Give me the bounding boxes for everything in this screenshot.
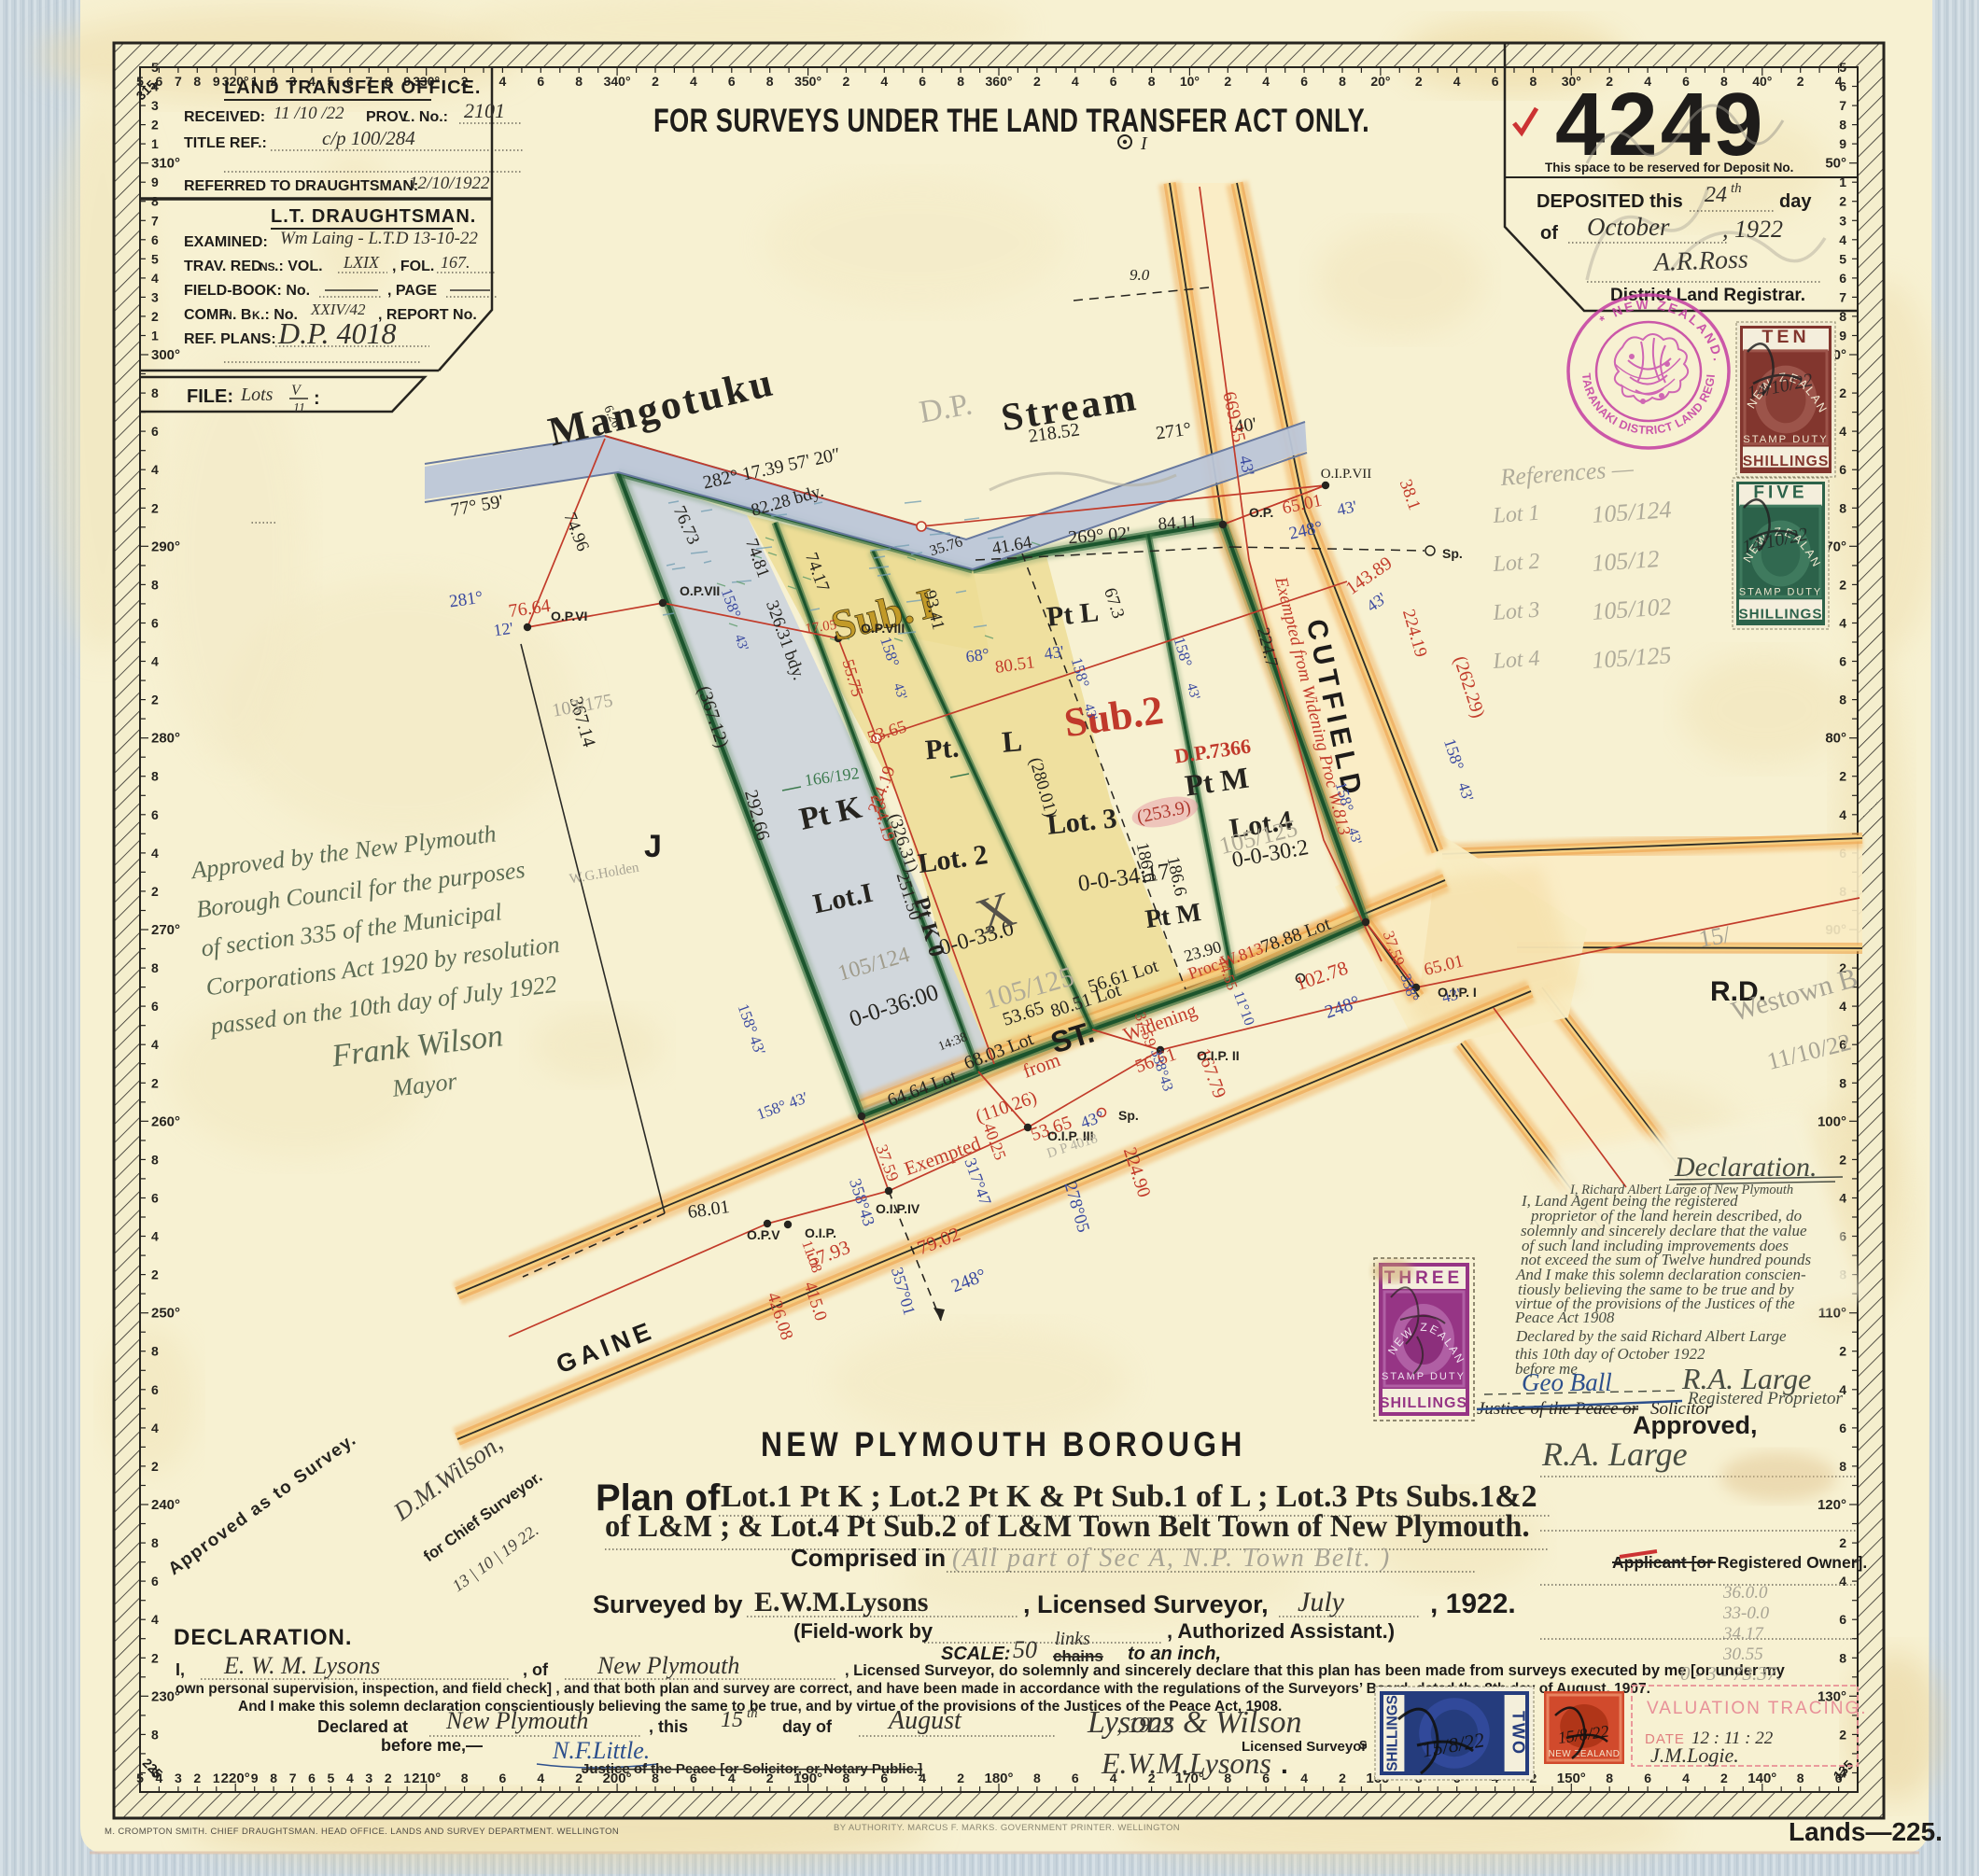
- svg-text:Wm Laing - L.T.D 13-10-22: Wm Laing - L.T.D 13-10-22: [280, 229, 478, 248]
- svg-text:4: 4: [499, 74, 507, 89]
- svg-text:6: 6: [1072, 1771, 1079, 1785]
- svg-text:8: 8: [193, 74, 201, 89]
- svg-text:NEW PLYMOUTH BOROUGH: NEW PLYMOUTH BOROUGH: [761, 1426, 1246, 1464]
- svg-text:15: 15: [721, 1708, 743, 1732]
- svg-text:5: 5: [328, 1771, 335, 1785]
- svg-text:350°: 350°: [794, 74, 821, 89]
- svg-text:43': 43': [1043, 642, 1065, 664]
- svg-text:STAMP DUTY: STAMP DUTY: [1739, 587, 1822, 598]
- svg-text:2: 2: [1839, 1344, 1846, 1359]
- svg-text:68°: 68°: [964, 644, 990, 665]
- svg-text:7: 7: [151, 213, 159, 228]
- svg-text:8: 8: [766, 74, 774, 89]
- svg-text:D.P. 4018: D.P. 4018: [277, 316, 397, 350]
- svg-text:J.M.Logie.: J.M.Logie.: [1650, 1743, 1739, 1767]
- svg-text:Geo Ball: Geo Ball: [1522, 1368, 1612, 1396]
- svg-text:SHILLINGS: SHILLINGS: [1380, 1395, 1467, 1411]
- svg-text:6: 6: [151, 999, 159, 1014]
- svg-text:15/: 15/: [1697, 920, 1733, 952]
- svg-text:NEW ZEALAND: NEW ZEALAND: [1549, 1749, 1621, 1759]
- svg-text:30.55: 30.55: [1722, 1645, 1763, 1664]
- svg-text:5: 5: [151, 251, 159, 266]
- svg-text:DEPOSITED this: DEPOSITED this: [1537, 191, 1683, 212]
- svg-text:2: 2: [151, 118, 159, 133]
- svg-text:R.A. Large: R.A. Large: [1541, 1435, 1688, 1473]
- svg-text:84.11: 84.11: [1158, 512, 1198, 535]
- svg-text:2: 2: [843, 74, 850, 89]
- svg-text:L.T. DRAUGHTSMAN.: L.T. DRAUGHTSMAN.: [271, 206, 476, 227]
- svg-text:Declared by the said Richar: Declared by the said Richard Albert Larg…: [1515, 1327, 1787, 1345]
- svg-text:O.P.V: O.P.V: [747, 1227, 780, 1242]
- svg-text:6: 6: [1110, 74, 1117, 89]
- svg-text:1: 1: [213, 1771, 220, 1785]
- svg-text:2: 2: [1839, 1535, 1846, 1550]
- svg-text:4: 4: [151, 1229, 159, 1244]
- svg-text:2: 2: [1033, 74, 1041, 89]
- svg-text:EXAMINED:: EXAMINED:: [184, 234, 268, 250]
- svg-text:110°: 110°: [1818, 1306, 1846, 1322]
- svg-text:.: VOL.: .: VOL.: [274, 259, 323, 274]
- svg-text:6: 6: [151, 807, 159, 822]
- svg-text:8: 8: [1839, 1459, 1846, 1474]
- svg-text:STAMP DUTY: STAMP DUTY: [1743, 434, 1829, 445]
- svg-text:105/124: 105/124: [1591, 496, 1672, 528]
- svg-text:9.0: 9.0: [1130, 266, 1150, 284]
- svg-text:Lot 3: Lot 3: [1492, 598, 1541, 625]
- svg-text:SHILLINGS: SHILLINGS: [1384, 1695, 1400, 1771]
- svg-text:E.W.M.Lysons: E.W.M.Lysons: [1101, 1746, 1271, 1780]
- svg-text:3: 3: [151, 98, 159, 113]
- svg-text:6: 6: [499, 1771, 507, 1785]
- svg-text:NS: NS: [260, 260, 275, 273]
- svg-text:8: 8: [151, 1535, 159, 1550]
- svg-text:4: 4: [1839, 232, 1846, 247]
- svg-text:O.P.: O.P.: [1249, 505, 1273, 520]
- svg-text:Sp.: Sp.: [1442, 546, 1463, 561]
- svg-text:4: 4: [151, 654, 159, 669]
- svg-text:2: 2: [957, 1771, 964, 1785]
- svg-text:LXIX: LXIX: [343, 253, 380, 272]
- svg-text:8: 8: [1839, 500, 1846, 515]
- svg-text:Comprised in: Comprised in: [791, 1544, 946, 1572]
- svg-text:8: 8: [151, 194, 159, 209]
- svg-text:270°: 270°: [151, 922, 180, 938]
- svg-text:9: 9: [1839, 136, 1846, 151]
- svg-text:Surveyed by: Surveyed by: [593, 1590, 743, 1618]
- svg-text:8: 8: [461, 1771, 469, 1785]
- svg-text:LAND TRANSFER OFFICE.: LAND TRANSFER OFFICE.: [224, 77, 481, 98]
- svg-text:Sp.: Sp.: [1118, 1108, 1139, 1123]
- svg-text:250°: 250°: [151, 1306, 180, 1322]
- svg-text:, Licensed Surveyor,: , Licensed Surveyor,: [1023, 1590, 1269, 1618]
- svg-text:6: 6: [151, 232, 159, 247]
- svg-text:, Licensed Surveyor, do solemn: , Licensed Surveyor, do solemnly and sin…: [845, 1662, 1786, 1679]
- svg-text:New Plymouth: New Plymouth: [445, 1707, 588, 1734]
- svg-text:11 /10 /22: 11 /10 /22: [274, 104, 344, 123]
- svg-text:REFERRED TO DRAUGHTSMAN:: REFERRED TO DRAUGHTSMAN:: [184, 178, 418, 194]
- svg-text:th: th: [747, 1706, 758, 1721]
- svg-text:2: 2: [151, 500, 159, 515]
- svg-text:6: 6: [151, 1382, 159, 1397]
- svg-text:269° 02': 269° 02': [1068, 524, 1131, 549]
- svg-text:4: 4: [346, 1771, 354, 1785]
- svg-text:2: 2: [1839, 769, 1846, 784]
- svg-text:4: 4: [1839, 1574, 1846, 1589]
- svg-text:6: 6: [308, 1771, 316, 1785]
- svg-text:FILE:: FILE:: [187, 386, 233, 407]
- svg-text:105/125: 105/125: [1591, 641, 1672, 674]
- svg-text:340°: 340°: [604, 74, 631, 89]
- svg-text:9: 9: [151, 175, 159, 189]
- svg-text:220°: 220°: [221, 1771, 250, 1786]
- svg-text:, of: , of: [523, 1660, 549, 1679]
- svg-text:5: 5: [151, 60, 159, 75]
- svg-text:6: 6: [1839, 79, 1846, 94]
- svg-text:8: 8: [1339, 74, 1346, 89]
- svg-text:9: 9: [1839, 329, 1846, 343]
- svg-text:RECEIVED:: RECEIVED:: [184, 109, 265, 125]
- svg-text:34.17: 34.17: [1722, 1624, 1764, 1644]
- svg-text:24: 24: [1705, 183, 1727, 207]
- svg-text:6: 6: [151, 1191, 159, 1206]
- svg-text:8: 8: [1148, 74, 1156, 89]
- svg-text:REF. PLANS:: REF. PLANS:: [184, 331, 276, 347]
- svg-text:7: 7: [175, 74, 182, 89]
- svg-text:6: 6: [728, 74, 736, 89]
- svg-text:3: 3: [365, 1771, 372, 1785]
- svg-text:4: 4: [1072, 74, 1079, 89]
- svg-text:6: 6: [1839, 1421, 1846, 1435]
- svg-text:4: 4: [1839, 616, 1846, 631]
- svg-text:2: 2: [652, 74, 659, 89]
- svg-text:4249: 4249: [1555, 75, 1766, 175]
- svg-text:th: th: [1731, 181, 1742, 196]
- svg-text:310°: 310°: [151, 156, 180, 172]
- svg-text:210°: 210°: [412, 1771, 441, 1786]
- svg-text:80°: 80°: [1825, 731, 1846, 747]
- svg-text:36.0.0: 36.0.0: [1722, 1583, 1768, 1603]
- svg-text:1: 1: [403, 1771, 411, 1785]
- svg-text:K: K: [252, 309, 260, 322]
- svg-text:FIELD-BOOK: No.: FIELD-BOOK: No.: [184, 283, 310, 299]
- svg-text:Declared at: Declared at: [317, 1717, 408, 1736]
- svg-text:7: 7: [1839, 98, 1846, 113]
- svg-text:8: 8: [575, 74, 582, 89]
- svg-text:8: 8: [957, 74, 964, 89]
- svg-text:360°: 360°: [986, 74, 1013, 89]
- svg-text:This space to be reserved for: This space to be reserved for Deposit No…: [1545, 161, 1793, 175]
- svg-text:6: 6: [1839, 1612, 1846, 1627]
- svg-text:2: 2: [1839, 194, 1846, 209]
- svg-text:of L&M ; & Lot.4 Pt Sub.2 of L: of L&M ; & Lot.4 Pt Sub.2 of L&M Town Be…: [605, 1508, 1530, 1544]
- svg-text:4: 4: [151, 1421, 159, 1435]
- svg-text:3: 3: [1839, 213, 1846, 228]
- svg-text:6: 6: [1839, 462, 1846, 477]
- svg-text:DECLARATION.: DECLARATION.: [174, 1625, 353, 1650]
- svg-text:5: 5: [1839, 60, 1846, 75]
- svg-text:Peace Act 1908: Peace Act 1908: [1514, 1309, 1615, 1326]
- svg-text:6: 6: [1300, 74, 1308, 89]
- svg-text:8: 8: [1839, 693, 1846, 707]
- svg-text:2: 2: [151, 1075, 159, 1090]
- svg-text:A.R.Ross: A.R.Ross: [1651, 245, 1748, 277]
- svg-text:105/12: 105/12: [1591, 545, 1660, 577]
- svg-text:1: 1: [151, 136, 159, 151]
- svg-text:240°: 240°: [151, 1497, 180, 1513]
- svg-text:2101: 2101: [464, 99, 505, 122]
- svg-text:2: 2: [151, 1650, 159, 1665]
- svg-text:4: 4: [151, 1037, 159, 1052]
- svg-text:Lysons & Wilson: Lysons & Wilson: [1087, 1705, 1301, 1740]
- svg-text:of: of: [1540, 223, 1558, 244]
- svg-text:8: 8: [151, 960, 159, 975]
- svg-text:J: J: [644, 829, 662, 864]
- svg-text:4: 4: [151, 846, 159, 861]
- svg-text:8: 8: [1033, 1771, 1041, 1785]
- svg-text:O.P.VI: O.P.VI: [551, 609, 587, 623]
- svg-text:2: 2: [1415, 74, 1423, 89]
- svg-text:, FOL.: , FOL.: [392, 259, 434, 274]
- svg-text:M. CROMPTON SMITH. CHIEF DRAUG: M. CROMPTON SMITH. CHIEF DRAUGHTSMAN. HE…: [105, 1827, 619, 1837]
- svg-text:4: 4: [1839, 807, 1846, 822]
- svg-text:, 1922.: , 1922.: [1430, 1589, 1516, 1619]
- svg-text:, 1922: , 1922: [1722, 216, 1783, 243]
- svg-text:2: 2: [1839, 577, 1846, 592]
- svg-text:2: 2: [193, 1771, 201, 1785]
- svg-text:COMP: COMP: [184, 307, 229, 323]
- svg-text:180°: 180°: [984, 1771, 1013, 1786]
- svg-text:Justice of the Peace [or Solic: Justice of the Peace [or Solicitor, or N…: [582, 1761, 922, 1777]
- svg-text:O.P.VIII: O.P.VIII: [861, 621, 905, 636]
- svg-text:FIVE: FIVE: [1753, 483, 1807, 503]
- svg-text:2: 2: [151, 1267, 159, 1282]
- svg-text:.: .: [1281, 1750, 1288, 1779]
- svg-text:, PAGE: , PAGE: [387, 283, 437, 299]
- svg-text:4: 4: [151, 271, 159, 286]
- svg-text:300°: 300°: [151, 347, 180, 363]
- svg-text:TRAV. RED: TRAV. RED: [184, 259, 262, 274]
- svg-text:6: 6: [151, 616, 159, 631]
- svg-text:O.I.P.VII: O.I.P.VII: [1321, 467, 1372, 482]
- svg-text:2: 2: [151, 309, 159, 324]
- svg-text:8: 8: [1797, 1771, 1804, 1785]
- svg-text:2: 2: [1839, 385, 1846, 400]
- svg-text:6: 6: [151, 1574, 159, 1589]
- svg-text:Lands—225.: Lands—225.: [1789, 1817, 1943, 1846]
- svg-text:day: day: [1779, 191, 1812, 212]
- svg-text:8: 8: [151, 577, 159, 592]
- svg-text:4: 4: [1682, 1771, 1690, 1785]
- svg-text:Lot 4: Lot 4: [1492, 647, 1541, 674]
- svg-text:6: 6: [1492, 74, 1499, 89]
- svg-text:20°: 20°: [1370, 74, 1390, 89]
- svg-text:(All part of Sec A, N.P. Town: (All part of Sec A, N.P. Town Belt. ): [952, 1544, 1391, 1573]
- svg-text:8: 8: [1839, 1650, 1846, 1665]
- svg-text:FOR SURVEYS UNDER THE LAND TRA: FOR SURVEYS UNDER THE LAND TRANSFER ACT …: [653, 103, 1369, 139]
- svg-text:c/p 100/284: c/p 100/284: [322, 127, 415, 149]
- svg-text:2: 2: [1339, 1771, 1346, 1785]
- svg-text:9: 9: [213, 74, 220, 89]
- svg-text:6: 6: [919, 74, 926, 89]
- svg-text:2: 2: [1224, 74, 1231, 89]
- svg-text:Pt L: Pt L: [1046, 596, 1101, 633]
- svg-text:before me,—: before me,—: [381, 1736, 483, 1755]
- svg-text:4: 4: [690, 74, 697, 89]
- svg-text:8: 8: [1839, 1075, 1846, 1090]
- svg-text:3: 3: [151, 289, 159, 304]
- svg-text:6: 6: [1839, 654, 1846, 669]
- svg-text:8: 8: [1606, 1771, 1613, 1785]
- svg-text:8: 8: [270, 1771, 277, 1785]
- svg-text:4: 4: [880, 74, 888, 89]
- svg-text:6: 6: [151, 424, 159, 439]
- svg-text:2: 2: [151, 1459, 159, 1474]
- svg-text:4: 4: [1262, 74, 1270, 89]
- svg-text:Lot 1: Lot 1: [1492, 501, 1541, 528]
- svg-text::: :: [314, 388, 320, 409]
- svg-text:E. W. M. Lysons: E. W. M. Lysons: [223, 1652, 380, 1679]
- svg-text:STAMP DUTY: STAMP DUTY: [1382, 1371, 1466, 1382]
- svg-text:Lots: Lots: [240, 385, 274, 405]
- svg-text:O.I.P. I: O.I.P. I: [1438, 985, 1477, 1000]
- svg-text:12': 12': [492, 619, 514, 640]
- svg-text:TEN: TEN: [1761, 327, 1809, 347]
- svg-text:N: N: [224, 309, 232, 322]
- svg-text:8: 8: [151, 1152, 159, 1167]
- svg-text:E.W.M.Lysons: E.W.M.Lysons: [754, 1587, 928, 1617]
- svg-text:4: 4: [1839, 999, 1846, 1014]
- svg-text:5: 5: [1839, 251, 1846, 266]
- svg-text:Lot 2: Lot 2: [1492, 550, 1541, 577]
- svg-text:10°: 10°: [1180, 74, 1200, 89]
- svg-text:140°: 140°: [1747, 1771, 1776, 1786]
- svg-text:I: I: [1140, 133, 1148, 154]
- svg-text:July: July: [1298, 1587, 1345, 1617]
- svg-text:7: 7: [289, 1771, 297, 1785]
- svg-text:to an inch,: to an inch,: [1128, 1644, 1221, 1664]
- svg-text:33-0.0: 33-0.0: [1722, 1603, 1770, 1623]
- svg-text:day of: day of: [782, 1717, 833, 1736]
- svg-text:, this: , this: [649, 1717, 688, 1736]
- svg-text:9: 9: [251, 1771, 259, 1785]
- svg-text:BY AUTHORITY. MARCUS F. MARKS.: BY AUTHORITY. MARCUS F. MARKS. GOVERNMEN…: [834, 1823, 1180, 1833]
- svg-text:4: 4: [151, 1612, 159, 1627]
- svg-text:O.I.P. II: O.I.P. II: [1197, 1048, 1240, 1063]
- svg-text:(Field-work by: (Field-work by: [793, 1619, 933, 1643]
- svg-text:. B: . B: [232, 307, 251, 323]
- svg-text:6: 6: [1839, 271, 1846, 286]
- svg-text:105/102: 105/102: [1591, 593, 1672, 625]
- svg-text:8: 8: [151, 385, 159, 400]
- svg-text:SHILLINGS: SHILLINGS: [1738, 606, 1822, 622]
- svg-text:7: 7: [1839, 289, 1846, 304]
- svg-text:4: 4: [537, 1771, 544, 1785]
- svg-text:, Authorized Assistant.): , Authorized Assistant.): [1167, 1619, 1395, 1643]
- svg-text:Pt.: Pt.: [924, 733, 961, 766]
- svg-text:SCALE:: SCALE:: [941, 1644, 1010, 1664]
- svg-text:0 - 3 - 73.37.: 0 - 3 - 73.37.: [1680, 1662, 1782, 1685]
- svg-text:8: 8: [151, 1344, 159, 1359]
- svg-text:O.I.P.IV: O.I.P.IV: [876, 1201, 920, 1216]
- svg-text:S: S: [1359, 1738, 1368, 1752]
- svg-text:August: August: [887, 1706, 962, 1735]
- svg-text:N.F.Little.: N.F.Little.: [552, 1737, 650, 1764]
- svg-text:280°: 280°: [151, 731, 180, 747]
- svg-text:New Plymouth: New Plymouth: [597, 1652, 739, 1679]
- svg-text:50: 50: [1013, 1636, 1037, 1663]
- svg-text:2: 2: [385, 1771, 392, 1785]
- svg-text:3: 3: [175, 1771, 182, 1785]
- svg-text:PROV: PROV: [366, 109, 409, 125]
- svg-text:8: 8: [151, 1727, 159, 1742]
- svg-text:2: 2: [151, 884, 159, 899]
- svg-text:2: 2: [1839, 1727, 1846, 1742]
- svg-text:October: October: [1587, 213, 1670, 241]
- svg-text:TWO: TWO: [1509, 1711, 1527, 1756]
- svg-text:4: 4: [1453, 74, 1461, 89]
- svg-text:links: links: [1055, 1629, 1090, 1649]
- svg-text:. No.:: . No.:: [411, 109, 448, 125]
- svg-text:8: 8: [1839, 118, 1846, 133]
- svg-text:4: 4: [1300, 1771, 1308, 1785]
- svg-text:167.: 167.: [441, 253, 470, 272]
- svg-text:4: 4: [151, 462, 159, 477]
- svg-text:L: L: [1001, 723, 1023, 759]
- svg-text:50°: 50°: [1825, 156, 1846, 172]
- svg-text:SHILLINGS: SHILLINGS: [1743, 454, 1830, 469]
- svg-text:260°: 260°: [151, 1113, 180, 1129]
- svg-text:6: 6: [1644, 1771, 1651, 1785]
- svg-text:100°: 100°: [1818, 1113, 1846, 1129]
- svg-text:11: 11: [293, 401, 305, 415]
- svg-text:6: 6: [537, 74, 544, 89]
- svg-text:8: 8: [1530, 74, 1537, 89]
- svg-text:290°: 290°: [151, 539, 180, 554]
- svg-text:O.P.VII: O.P.VII: [680, 583, 720, 598]
- svg-text:120°: 120°: [1818, 1497, 1846, 1513]
- svg-text:I,: I,: [175, 1660, 185, 1679]
- svg-text:VALUATION TRACING.: VALUATION TRACING.: [1647, 1699, 1868, 1718]
- svg-text:150°: 150°: [1557, 1771, 1586, 1786]
- svg-text:12/10/1922: 12/10/1922: [409, 174, 490, 193]
- svg-text:2: 2: [1720, 1771, 1728, 1785]
- svg-text:2: 2: [1839, 1152, 1846, 1167]
- svg-text:1: 1: [151, 329, 159, 343]
- svg-text:TITLE REF.:: TITLE REF.:: [184, 135, 267, 151]
- svg-text:O.I.P.: O.I.P.: [805, 1225, 836, 1240]
- svg-text:4: 4: [1839, 1191, 1846, 1206]
- svg-text:8: 8: [151, 769, 159, 784]
- svg-text:2: 2: [1797, 74, 1804, 89]
- svg-text:2: 2: [151, 693, 159, 707]
- svg-text:L: L: [403, 111, 410, 124]
- svg-text:4: 4: [1839, 424, 1846, 439]
